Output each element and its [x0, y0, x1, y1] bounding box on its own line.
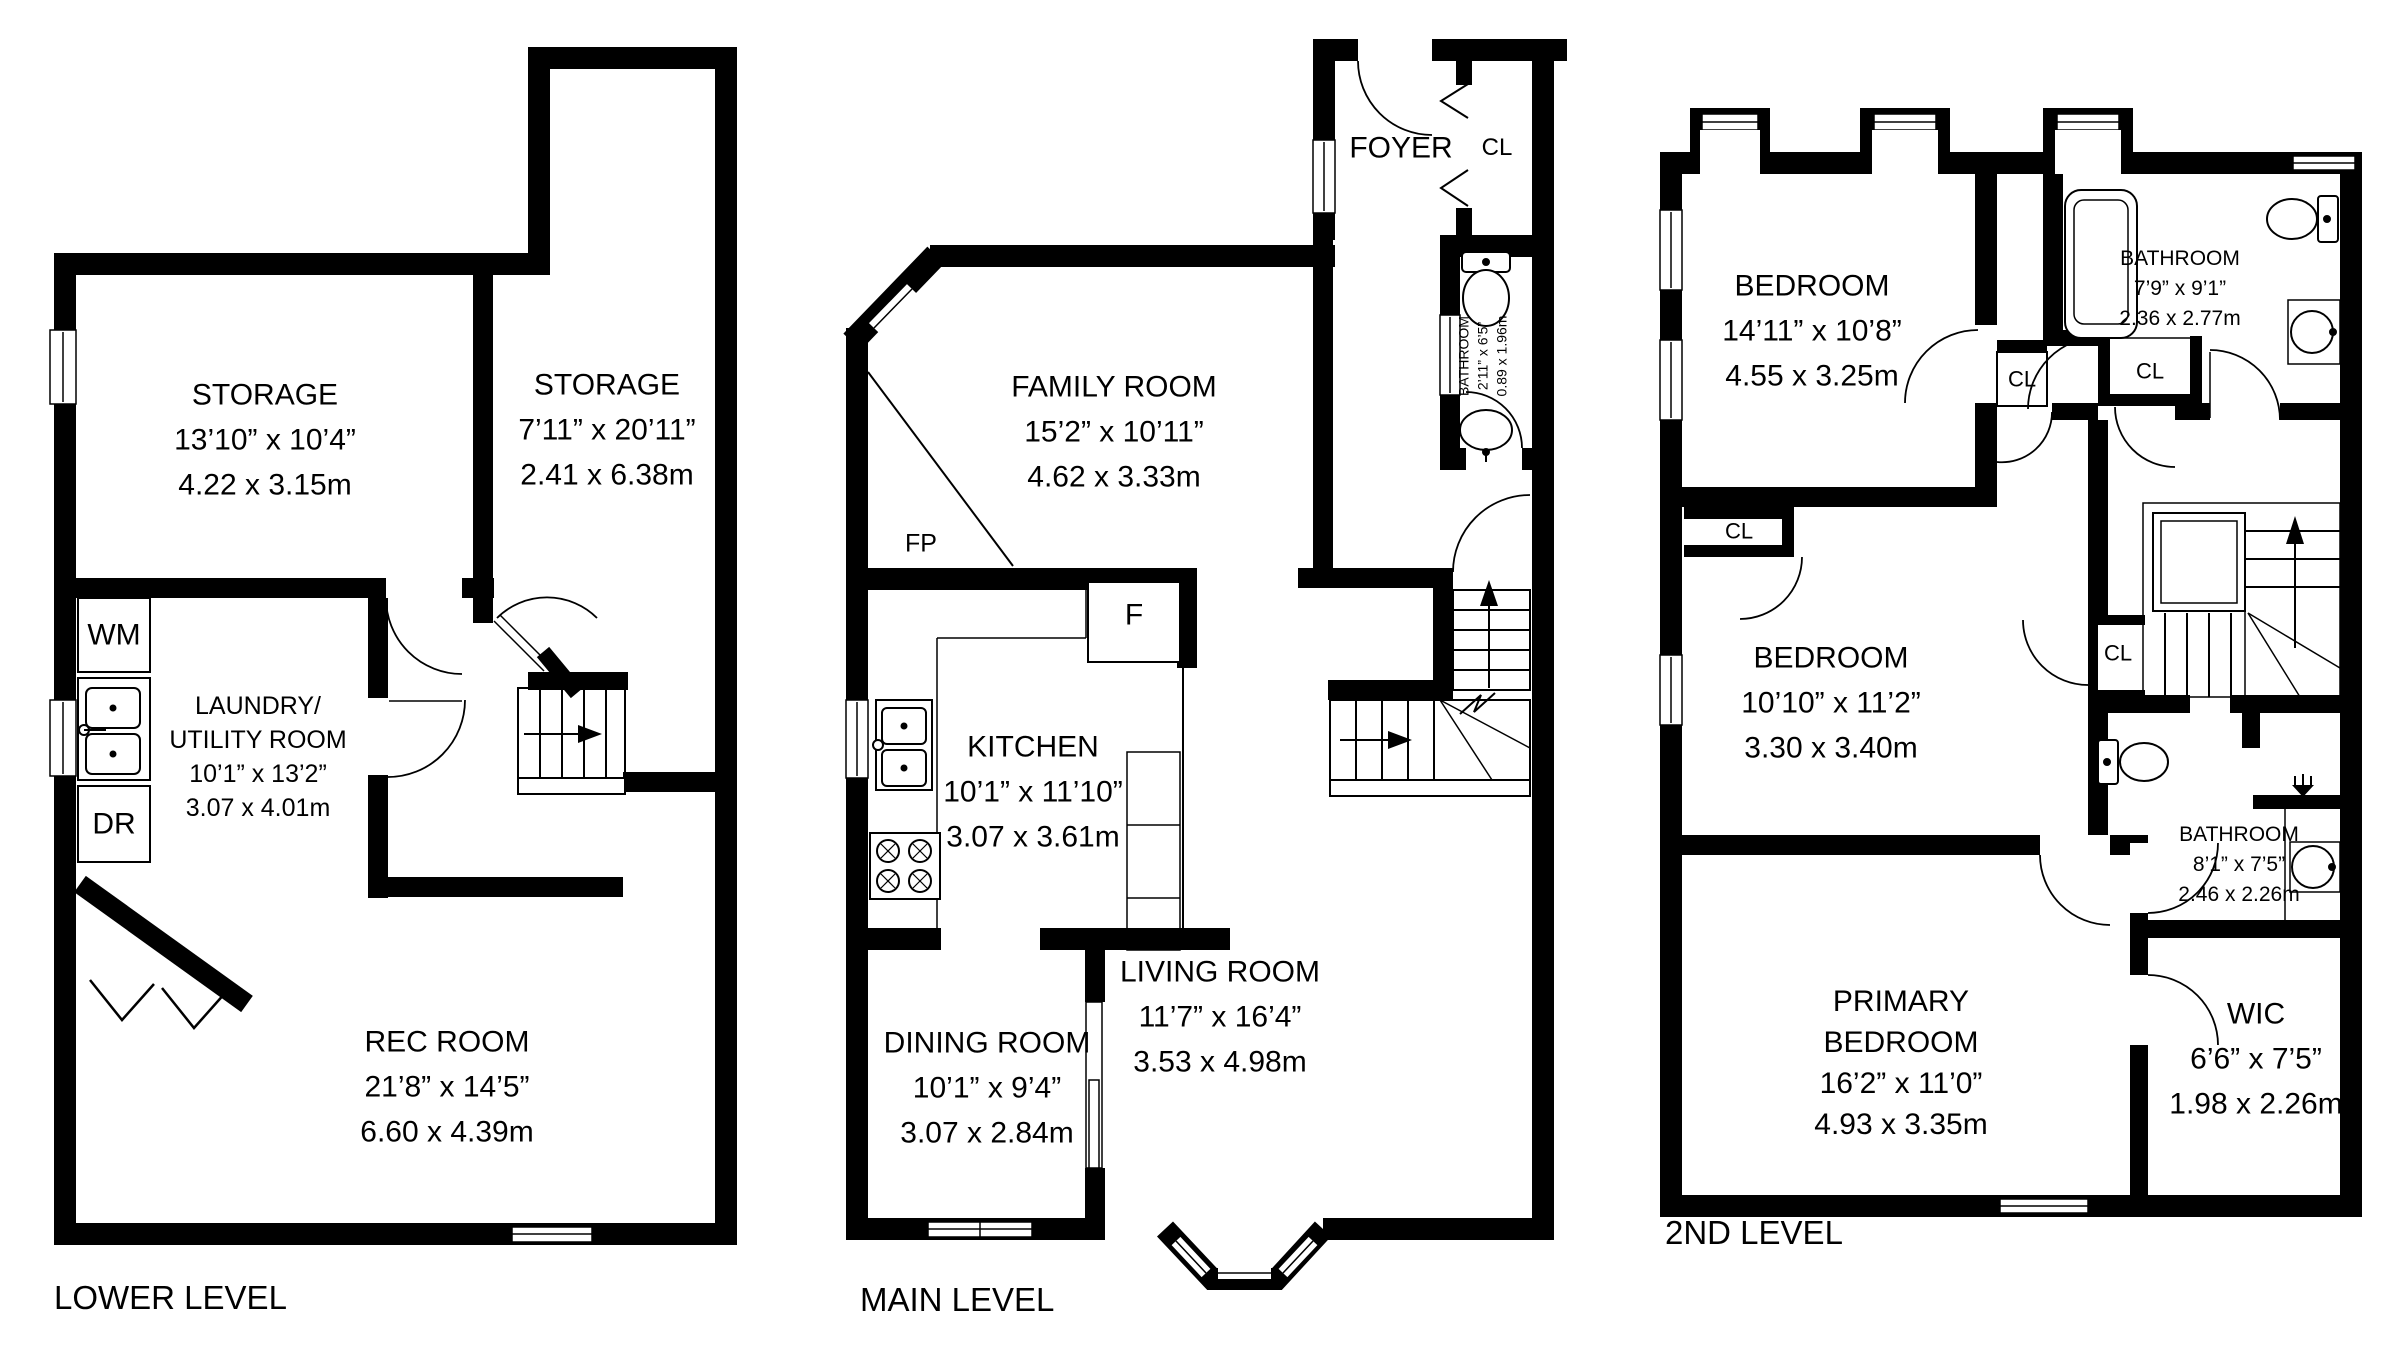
level-title-main: MAIN LEVEL — [860, 1281, 1054, 1319]
room-label-storage-2: STORAGE 7’11” x 20’11” 2.41 x 6.38m — [518, 363, 695, 498]
room-dim-imperial: 14’11” x 10’8” — [1722, 309, 1902, 354]
closet-label: CL — [2008, 363, 2036, 396]
entry-door-arc — [1358, 61, 1432, 135]
door-arc — [2115, 407, 2175, 467]
room-label-family-room: FAMILY ROOM 15’2” x 10’11” 4.62 x 3.33m — [1011, 365, 1217, 500]
room-dim-imperial: 10’1” x 11’10” — [943, 770, 1123, 815]
room-dim-imperial: 21’8” x 14’5” — [360, 1065, 533, 1110]
room-label-main-bathroom: BATHROOM 2’11” x 6’5” 0.89 x 1.96m — [1455, 316, 1512, 397]
room-name: KITCHEN — [943, 725, 1123, 770]
room-dim-imperial: 6’6” x 7’5” — [2169, 1037, 2342, 1082]
room-dim-imperial: 11’7” x 16’4” — [1120, 995, 1320, 1040]
room-label-bedroom-1: BEDROOM 14’11” x 10’8” 4.55 x 3.25m — [1722, 264, 1902, 399]
room-name: DINING ROOM — [884, 1021, 1091, 1066]
room-label-primary-bedroom: PRIMARY BEDROOM 16’2” x 11’0” 4.93 x 3.3… — [1814, 981, 1987, 1145]
room-dim-imperial: 7’11” x 20’11” — [518, 408, 695, 453]
chevron-door-icon — [90, 980, 154, 1020]
room-label-laundry: LAUNDRY/ UTILITY ROOM 10’1” x 13’2” 3.07… — [169, 689, 346, 825]
room-label-bathroom-upper: BATHROOM 7’9” x 9’1” 2.36 x 2.77m — [2119, 244, 2240, 334]
room-label-dining-room: DINING ROOM 10’1” x 9’4” 3.07 x 2.84m — [884, 1021, 1091, 1156]
diagonal-wall — [80, 884, 247, 1004]
room-dim-imperial: 10’1” x 13’2” — [169, 757, 346, 791]
room-label-kitchen: KITCHEN 10’1” x 11’10” 3.07 x 3.61m — [943, 725, 1123, 860]
room-name: STORAGE — [174, 373, 356, 418]
room-dim-metric: 0.89 x 1.96m — [1492, 316, 1511, 397]
room-dim-metric: 2.41 x 6.38m — [518, 453, 695, 498]
closet-label: CL — [2104, 637, 2132, 670]
level-title-second: 2ND LEVEL — [1665, 1214, 1843, 1252]
door-arc — [1740, 557, 1802, 619]
fireplace-flue-line — [868, 372, 1013, 566]
room-dim-imperial: 7’9” x 9’1” — [2119, 274, 2240, 304]
chevron-door-icon — [1441, 170, 1468, 206]
room-dim-metric: 4.93 x 3.35m — [1814, 1104, 1987, 1145]
door-arc — [2210, 350, 2280, 420]
room-label-storage-1: STORAGE 13’10” x 10’4” 4.22 x 3.15m — [174, 373, 356, 508]
stair-arrow — [578, 725, 602, 743]
wm-label: WM — [87, 613, 140, 658]
closet-label: CL — [2136, 355, 2164, 388]
room-dim-imperial: 10’1” x 9’4” — [884, 1066, 1091, 1111]
room-name: PRIMARY — [1814, 981, 1987, 1022]
room-name: REC ROOM — [360, 1020, 533, 1065]
room-dim-metric: 1.98 x 2.26m — [2169, 1082, 2342, 1127]
room-label-wic: WIC 6’6” x 7’5” 1.98 x 2.26m — [2169, 992, 2342, 1127]
room-dim-metric: 3.07 x 4.01m — [169, 791, 346, 825]
room-name: BEDROOM — [1814, 1022, 1987, 1063]
room-dim-metric: 2.36 x 2.77m — [2119, 304, 2240, 334]
room-dim-metric: 3.07 x 3.61m — [943, 815, 1123, 860]
toilet-icon — [2267, 196, 2338, 242]
room-dim-metric: 4.55 x 3.25m — [1722, 354, 1902, 399]
door-arc — [2023, 620, 2088, 685]
door-arc — [1453, 495, 1530, 572]
door-arc — [388, 700, 465, 777]
room-name: BEDROOM — [1722, 264, 1902, 309]
cabinet-run — [1127, 752, 1180, 950]
room-dim-imperial: 10’10” x 11’2” — [1741, 681, 1921, 726]
room-dim-imperial: 15’2” x 10’11” — [1011, 410, 1217, 455]
door-arc — [386, 598, 462, 674]
room-name: STORAGE — [518, 363, 695, 408]
room-dim-metric: 3.07 x 2.84m — [884, 1111, 1091, 1156]
level-title-lower: LOWER LEVEL — [54, 1279, 287, 1317]
kitchen-sink-icon — [873, 700, 932, 790]
dryer-label: DR — [92, 802, 135, 847]
room-name: BATHROOM — [1455, 316, 1474, 397]
room-dim-metric: 4.22 x 3.15m — [174, 463, 356, 508]
room-label-foyer: FOYER — [1349, 126, 1452, 171]
room-label-rec-room: REC ROOM 21’8” x 14’5” 6.60 x 4.39m — [360, 1020, 533, 1155]
fireplace-label: FP — [905, 525, 937, 563]
room-name: FOYER — [1349, 126, 1452, 171]
room-dim-metric: 2.46 x 2.26m — [2178, 880, 2299, 910]
room-dim-imperial: 2’11” x 6’5” — [1474, 316, 1493, 397]
chevron-door-icon — [1441, 84, 1468, 118]
room-name: LIVING ROOM — [1120, 950, 1320, 995]
room-dim-metric: 3.30 x 3.40m — [1741, 726, 1921, 771]
room-dim-metric: 4.62 x 3.33m — [1011, 455, 1217, 500]
lower-staircase — [518, 688, 625, 794]
door-arc — [1905, 330, 1978, 403]
closet-label: CL — [1725, 515, 1753, 548]
room-dim-metric: 3.53 x 4.98m — [1120, 1040, 1320, 1085]
room-label-living-room: LIVING ROOM 11’7” x 16’4” 3.53 x 4.98m — [1120, 950, 1320, 1085]
room-name: LAUNDRY/ — [169, 689, 346, 723]
room-dim-imperial: 13’10” x 10’4” — [174, 418, 356, 463]
room-name: UTILITY ROOM — [169, 723, 346, 757]
room-dim-imperial: 8’1” x 7’5” — [2178, 850, 2299, 880]
room-dim-metric: 6.60 x 4.39m — [360, 1110, 533, 1155]
room-name: FAMILY ROOM — [1011, 365, 1217, 410]
room-name: BEDROOM — [1741, 636, 1921, 681]
bay-window — [1165, 1229, 1323, 1279]
second-staircase — [2143, 503, 2340, 697]
fridge-label: F — [1125, 593, 1143, 638]
door-arc — [1997, 412, 2052, 462]
toilet-icon — [2098, 740, 2168, 784]
closet-label: CL — [1482, 130, 1513, 166]
door-arc — [2040, 855, 2110, 925]
room-name: BATHROOM — [2119, 244, 2240, 274]
room-dim-imperial: 16’2” x 11’0” — [1814, 1063, 1987, 1104]
sink-icon — [2288, 300, 2340, 364]
room-name: WIC — [2169, 992, 2342, 1037]
room-name: BATHROOM — [2178, 820, 2299, 850]
room-label-bedroom-2: BEDROOM 10’10” x 11’2” 3.30 x 3.40m — [1741, 636, 1921, 771]
room-label-bathroom-lower: BATHROOM 8’1” x 7’5” 2.46 x 2.26m — [2178, 820, 2299, 910]
stove-icon — [870, 833, 940, 899]
door-arc — [497, 597, 597, 618]
floorplan-page: STORAGE 13’10” x 10’4” 4.22 x 3.15m STOR… — [0, 0, 2400, 1346]
